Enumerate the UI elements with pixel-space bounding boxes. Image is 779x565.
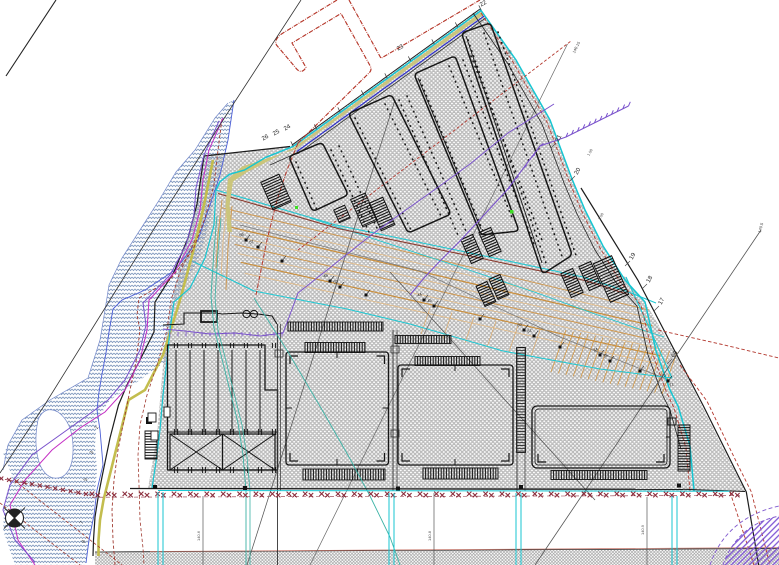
svg-text:140.9: 140.9 xyxy=(640,524,645,535)
svg-text:140.6: 140.6 xyxy=(196,530,201,541)
svg-text:140.8: 140.8 xyxy=(427,530,432,541)
